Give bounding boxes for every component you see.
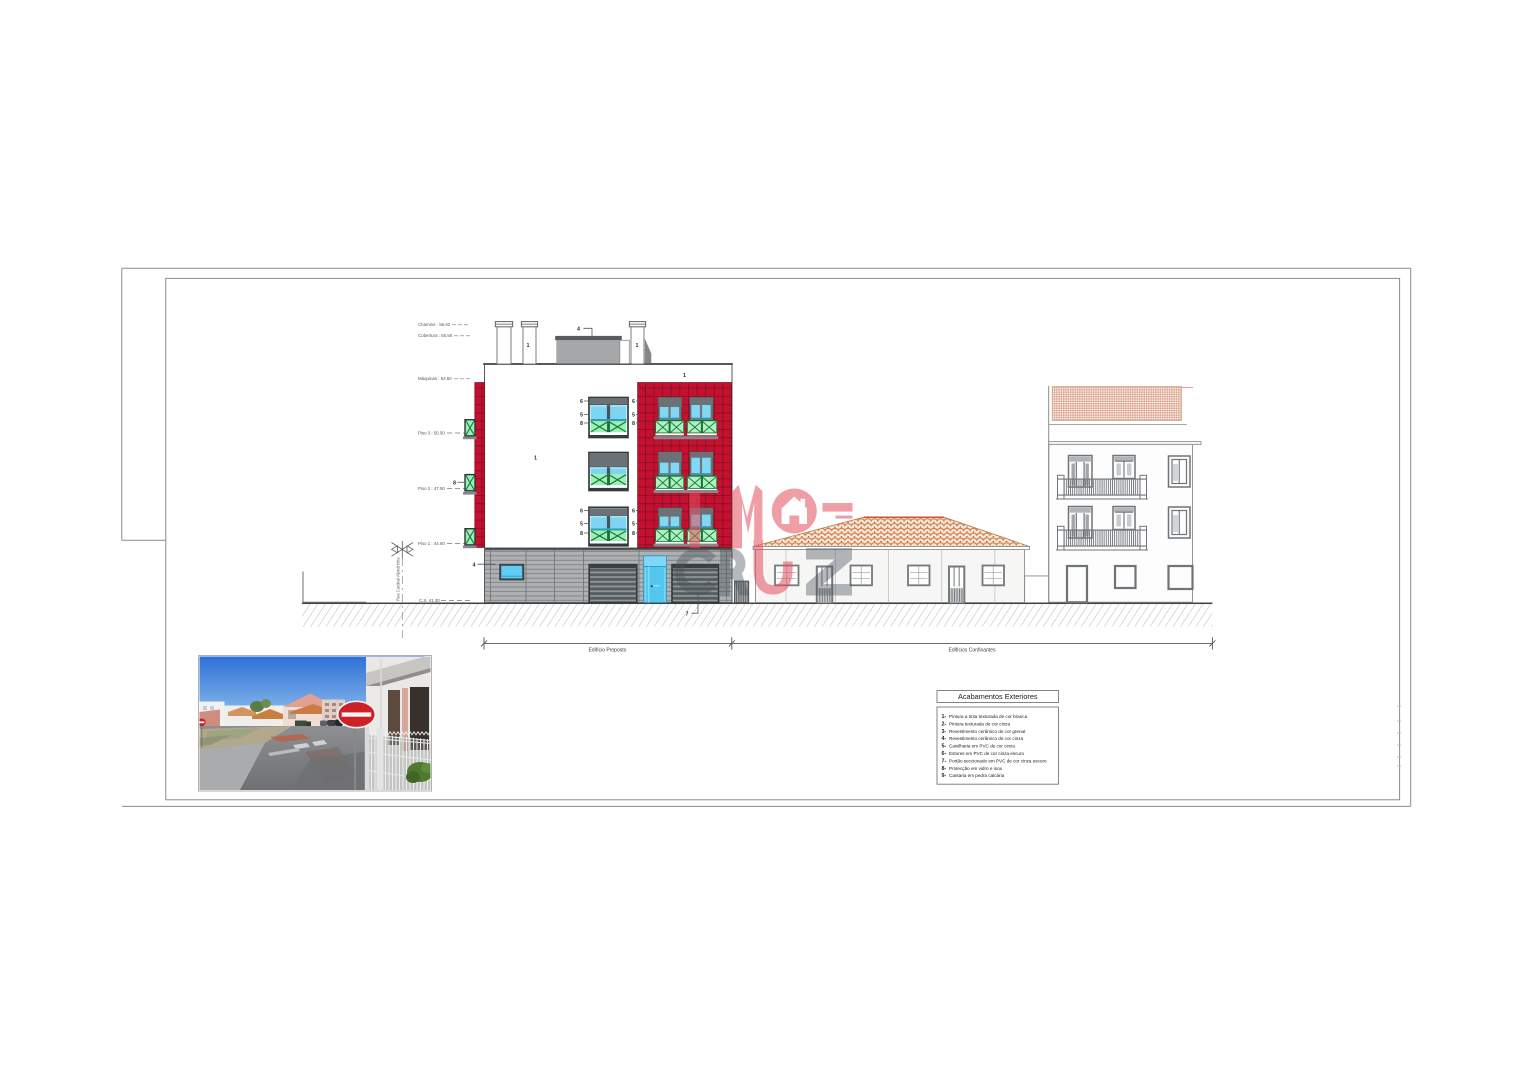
svg-text:Acabamentos Exteriores: Acabamentos Exteriores xyxy=(958,692,1038,701)
svg-text:5: 5 xyxy=(580,413,583,419)
svg-text:1: 1 xyxy=(527,343,530,349)
svg-text:8: 8 xyxy=(580,531,583,537)
svg-text:Chaminé : 56.62: Chaminé : 56.62 xyxy=(418,322,451,327)
svg-text:7-: 7- xyxy=(942,758,947,764)
svg-text:Cobertura : 55.50: Cobertura : 55.50 xyxy=(418,333,453,338)
svg-text:Piso 2 : 47.50: Piso 2 : 47.50 xyxy=(418,486,445,491)
svg-text:Revestimento cerâmico de cor g: Revestimento cerâmico de cor grenat xyxy=(949,729,1026,734)
svg-text:6: 6 xyxy=(580,399,583,405)
svg-text:5: 5 xyxy=(632,522,635,528)
svg-text:8: 8 xyxy=(632,531,635,537)
svg-text:2-: 2- xyxy=(942,721,947,727)
svg-text:Revestimento cerâmico de cor c: Revestimento cerâmico de cor cinza xyxy=(949,736,1023,741)
svg-text:C.S. 41.30: C.S. 41.30 xyxy=(419,598,440,603)
svg-text:1-: 1- xyxy=(942,714,947,720)
svg-text:7: 7 xyxy=(686,611,689,617)
svg-text:6-: 6- xyxy=(942,751,947,757)
svg-text:6: 6 xyxy=(580,509,583,515)
svg-text:6: 6 xyxy=(632,509,635,515)
svg-text:Pintura texturada de cor cinza: Pintura texturada de cor cinza xyxy=(949,721,1010,726)
svg-text:9-: 9- xyxy=(942,773,947,779)
svg-text:1: 1 xyxy=(683,373,686,379)
svg-text:Rua Cardeal Alpedrinha: Rua Cardeal Alpedrinha xyxy=(396,557,401,601)
svg-text:8-: 8- xyxy=(942,766,947,772)
svg-text:1: 1 xyxy=(534,456,537,462)
svg-text:6: 6 xyxy=(632,399,635,405)
svg-text:Pintura a tinta texturada de c: Pintura a tinta texturada de cor branca xyxy=(949,714,1028,719)
svg-text:5-: 5- xyxy=(942,744,947,750)
svg-text:Piso 3 : 50.50: Piso 3 : 50.50 xyxy=(418,430,445,435)
svg-text:Edifício Proposto: Edifício Proposto xyxy=(589,648,627,654)
svg-text:8: 8 xyxy=(453,480,456,486)
svg-text:4: 4 xyxy=(577,326,580,332)
svg-text:8: 8 xyxy=(632,421,635,427)
svg-text:Piso 1 : 44.50: Piso 1 : 44.50 xyxy=(418,541,445,546)
svg-text:Máquinas : 53.50: Máquinas : 53.50 xyxy=(418,376,452,381)
svg-text:3-: 3- xyxy=(942,729,947,735)
svg-text:4: 4 xyxy=(473,562,476,568)
svg-text:5: 5 xyxy=(580,522,583,528)
svg-text:Edifícios Confinantes: Edifícios Confinantes xyxy=(949,648,996,654)
svg-text:Caixilharia em PVC de cor cinz: Caixilharia em PVC de cor cinza xyxy=(949,744,1015,749)
svg-text:4-: 4- xyxy=(942,736,947,742)
svg-text:1: 1 xyxy=(636,343,639,349)
svg-text:Estores em PVC de cor cinza es: Estores em PVC de cor cinza escuro xyxy=(949,751,1025,756)
svg-text:8: 8 xyxy=(580,421,583,427)
svg-text:Cantaria em pedra calcária: Cantaria em pedra calcária xyxy=(949,773,1005,778)
svg-text:Protecção em vidro e inox: Protecção em vidro e inox xyxy=(949,766,1003,771)
svg-text:5: 5 xyxy=(632,413,635,419)
svg-text:Portão seccionado em PVC de co: Portão seccionado em PVC de cor cinza es… xyxy=(949,758,1047,763)
